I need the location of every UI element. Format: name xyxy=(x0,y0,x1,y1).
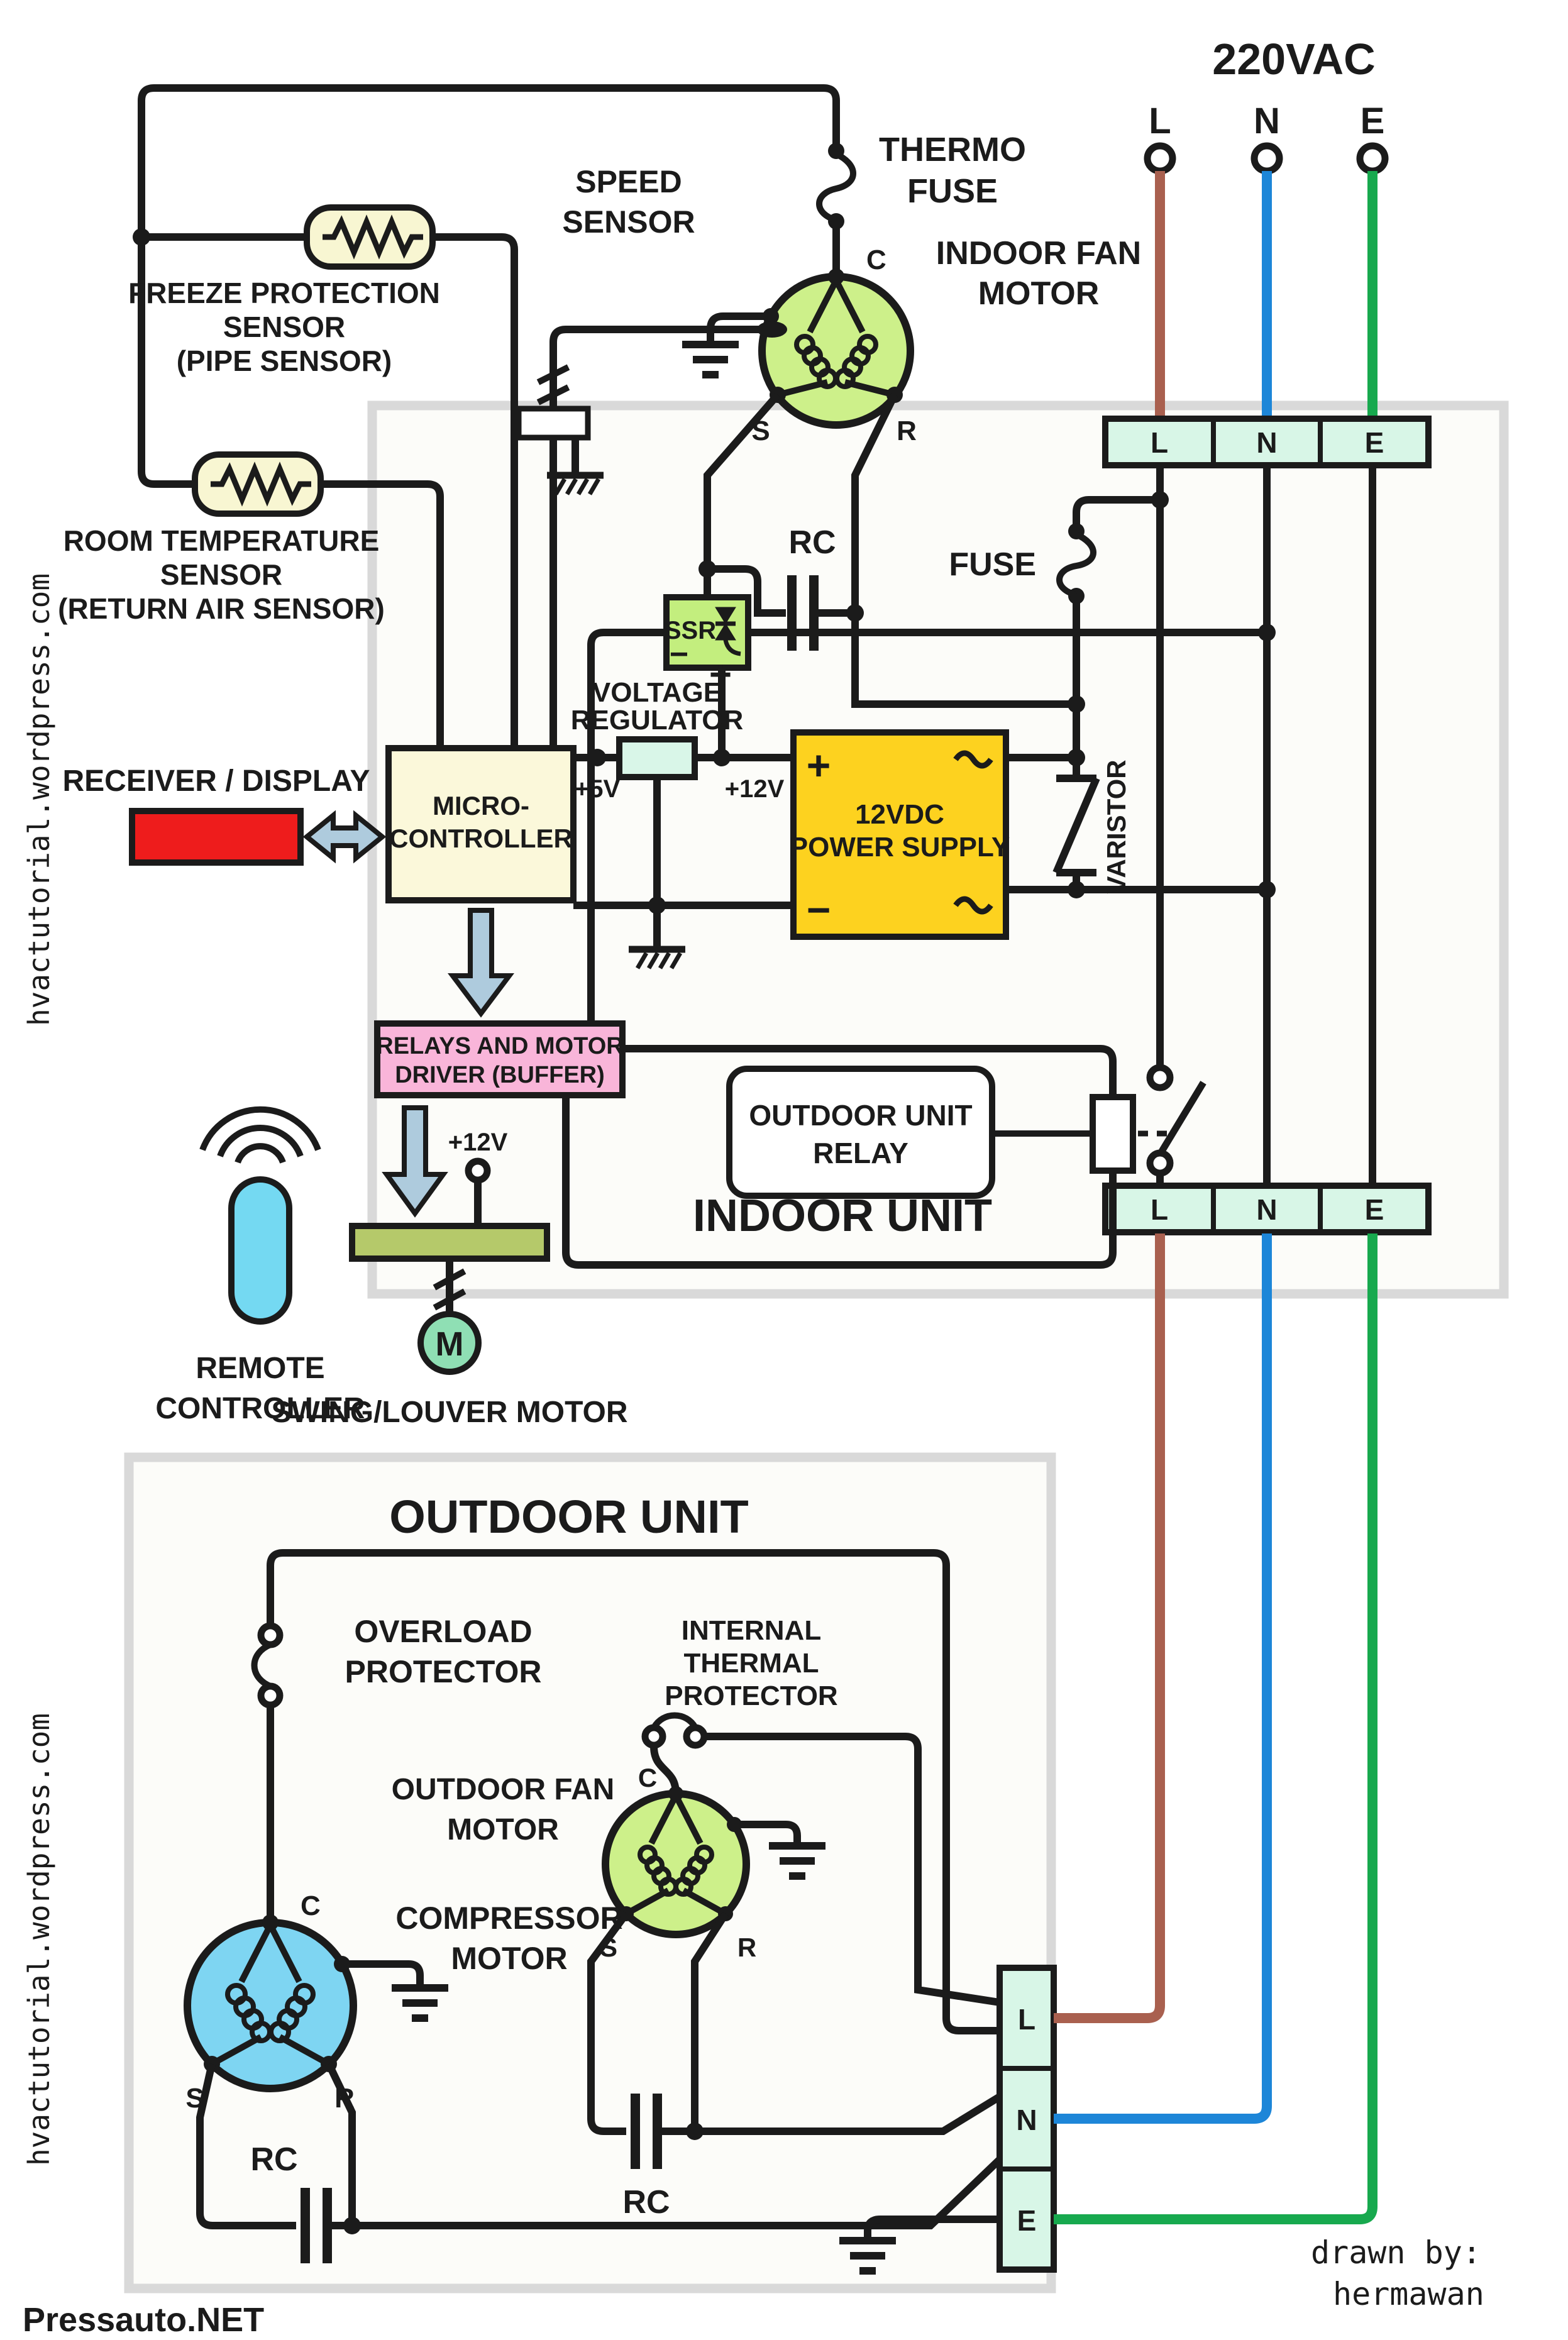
pin-c-label: C xyxy=(638,1763,657,1792)
receiver-label: RECEIVER / DISPLAY xyxy=(62,764,370,798)
contact-icon xyxy=(645,1728,663,1745)
freeze-sensor-label-2: SENSOR xyxy=(223,311,345,343)
junction-dot xyxy=(133,228,150,246)
junction-dot xyxy=(588,749,606,766)
swing-motor-label: SWING/LOUVER MOTOR xyxy=(271,1396,627,1429)
indoor-terminal-block-top: L N E xyxy=(1105,419,1428,465)
credit-line-1: drawn by: xyxy=(1311,2234,1481,2271)
supply-terminal-icon xyxy=(468,1161,487,1180)
switch-contact-icon xyxy=(1150,1068,1170,1088)
rc-label: RC xyxy=(250,2141,297,2178)
room-temperature-sensor: ROOM TEMPERATURE SENSOR (RETURN AIR SENS… xyxy=(58,455,385,625)
pin-c-dot xyxy=(668,1786,683,1801)
overload-label-2: PROTECTOR xyxy=(345,1654,542,1689)
indoor-fan-label-1: INDOOR FAN xyxy=(936,235,1141,272)
fuse-label: FUSE xyxy=(949,546,1036,583)
mcu-label-1: MICRO- xyxy=(433,791,529,820)
rc-label: RC xyxy=(788,524,836,561)
remote-controller: REMOTE CONTROLLER xyxy=(155,1110,365,1425)
junction-dot xyxy=(713,749,731,766)
outdoor-fan-label-1: OUTDOOR FAN xyxy=(392,1773,615,1806)
room-sensor-label-2: SENSOR xyxy=(160,558,282,591)
itp-label-3: PROTECTOR xyxy=(665,1680,837,1711)
watermark-top: hvactutorial.wordpress.com xyxy=(22,573,56,1026)
pin-c-label: C xyxy=(301,1890,321,1921)
terminal-l-label: L xyxy=(1151,426,1168,459)
indoor-unit-title: INDOOR UNIT xyxy=(693,1191,992,1241)
driver-label-2: DRIVER (BUFFER) xyxy=(395,1062,605,1088)
terminal-n-label: N xyxy=(1256,426,1277,459)
terminal-n-label: N xyxy=(1256,1193,1277,1226)
pin-c-label: C xyxy=(866,245,886,275)
itp-label-1: INTERNAL xyxy=(682,1615,821,1646)
hvac-wiring-diagram: 220VAC L N E L N E L N E FR xyxy=(0,0,1568,2340)
mains-n-label: N xyxy=(1254,101,1280,141)
relay-coil-icon xyxy=(1093,1097,1133,1171)
microcontroller: MICRO- CONTROLLER xyxy=(389,748,573,900)
pin-c-dot xyxy=(828,268,844,285)
itp-label-2: THERMAL xyxy=(683,1648,819,1679)
overload-label-1: OVERLOAD xyxy=(354,1614,532,1649)
mains-n-terminal-icon xyxy=(1254,146,1279,171)
capacitor-plate-icon xyxy=(809,575,819,651)
terminal-l-label: L xyxy=(1018,2003,1035,2036)
wire-earth-interconnect xyxy=(1054,1233,1372,2219)
motor-m-label: M xyxy=(436,1325,464,1363)
pin-r-label: R xyxy=(737,1933,756,1962)
indoor-terminal-block-bottom: L N E xyxy=(1105,1186,1428,1232)
speed-sensor-label-1: SPEED xyxy=(575,164,682,199)
site-credit: Pressauto.NET xyxy=(23,2301,264,2339)
wiring-diagram-page: 220VAC L N E L N E L N E FR xyxy=(0,0,1568,2340)
psu-label-2: POWER SUPPLY xyxy=(790,832,1010,863)
receiver-body xyxy=(132,811,301,863)
indoor-fan-label-2: MOTOR xyxy=(978,275,1100,312)
room-sensor-label-3: (RETURN AIR SENSOR) xyxy=(58,592,385,625)
contact-icon xyxy=(687,1728,704,1745)
psu-label-1: 12VDC xyxy=(855,799,944,830)
thermo-fuse-icon xyxy=(819,154,853,220)
freeze-sensor-label-1: FREEZE PROTECTION xyxy=(128,277,440,309)
mcu-label-2: CONTROLLER xyxy=(389,824,573,853)
mains-e-label: E xyxy=(1361,101,1385,141)
mains-e-terminal-icon xyxy=(1360,146,1385,171)
remote-body xyxy=(231,1179,289,1322)
relay-callout xyxy=(729,1069,992,1196)
relay-label-2: RELAY xyxy=(813,1137,908,1169)
credit-line-2: hermawan xyxy=(1333,2276,1484,2312)
mains-l-label: L xyxy=(1149,101,1171,141)
capacitor-plate-icon xyxy=(787,575,797,651)
capacitor-plate-icon xyxy=(301,2188,310,2263)
rc-label: RC xyxy=(622,2184,670,2221)
mains-voltage-label: 220VAC xyxy=(1212,35,1375,84)
thermo-fuse-label-2: FUSE xyxy=(907,172,998,210)
outdoor-terminal-block: L N E xyxy=(1000,1968,1054,2270)
wire-speed-sensor xyxy=(553,329,772,409)
vreg-body xyxy=(619,739,695,777)
driver-bar xyxy=(352,1226,547,1259)
vreg-label-1: VOLTAGE xyxy=(592,677,722,708)
freeze-protection-sensor: FREEZE PROTECTION SENSOR (PIPE SENSOR) xyxy=(128,207,440,377)
remote-label-1: REMOTE xyxy=(196,1352,324,1385)
terminal-n-label: N xyxy=(1016,2104,1037,2136)
pin-c-dot xyxy=(262,1914,279,1931)
vreg-label-2: REGULATOR xyxy=(571,705,744,736)
driver-label-1: RELAYS AND MOTOR xyxy=(376,1033,623,1059)
outdoor-unit-title: OUTDOOR UNIT xyxy=(389,1491,748,1543)
signal-arc-icon xyxy=(238,1146,283,1162)
signal-arc-icon xyxy=(220,1128,301,1156)
room-sensor-label-1: ROOM TEMPERATURE xyxy=(63,524,380,557)
wire-live-interconnect xyxy=(1054,1233,1160,2018)
switch-contact-icon xyxy=(1150,1153,1170,1173)
freeze-sensor-label-3: (PIPE SENSOR) xyxy=(177,345,392,377)
contact-icon xyxy=(261,1626,280,1645)
watermark-bottom: hvactutorial.wordpress.com xyxy=(22,1713,56,2166)
terminal-e-label: E xyxy=(1365,426,1384,459)
interconnect-wires xyxy=(1054,1233,1372,2219)
junction-dot xyxy=(1258,881,1276,898)
ssr-minus-label: − xyxy=(670,636,688,673)
ground-icon xyxy=(682,345,739,375)
mains-l-terminal-icon xyxy=(1147,146,1173,171)
capacitor-plate-icon xyxy=(653,2094,662,2169)
psu-plus-label: + xyxy=(807,742,831,788)
mains-supply: 220VAC L N E xyxy=(1147,35,1385,419)
compressor-label-2: MOTOR xyxy=(451,1941,567,1976)
plus5v-label: +5V xyxy=(575,775,621,803)
contact-icon xyxy=(261,1686,280,1705)
compressor-label-1: COMPRESSOR xyxy=(395,1901,622,1936)
terminal-l-label: L xyxy=(1151,1193,1168,1226)
connector-body xyxy=(519,409,588,438)
pin-r-label: R xyxy=(897,416,917,446)
capacitor-plate-icon xyxy=(323,2188,332,2263)
outdoor-fan-label-2: MOTOR xyxy=(447,1813,559,1846)
plus12v-label: +12V xyxy=(725,775,785,803)
psu-minus-label: − xyxy=(807,886,831,933)
plus12v-label: +12V xyxy=(448,1129,508,1156)
junction-dot xyxy=(648,897,666,914)
capacitor-plate-icon xyxy=(631,2094,640,2169)
thermo-fuse-label-1: THERMO xyxy=(879,131,1026,168)
junction-dot xyxy=(1258,624,1276,641)
receiver-display: RECEIVER / DISPLAY xyxy=(62,764,382,863)
relay-label-1: OUTDOOR UNIT xyxy=(749,1099,972,1132)
terminal-e-label: E xyxy=(1017,2204,1037,2237)
varistor-label: VARISTOR xyxy=(1101,759,1131,893)
speed-sensor-label-2: SENSOR xyxy=(562,204,695,240)
terminal-e-label: E xyxy=(1365,1193,1384,1226)
